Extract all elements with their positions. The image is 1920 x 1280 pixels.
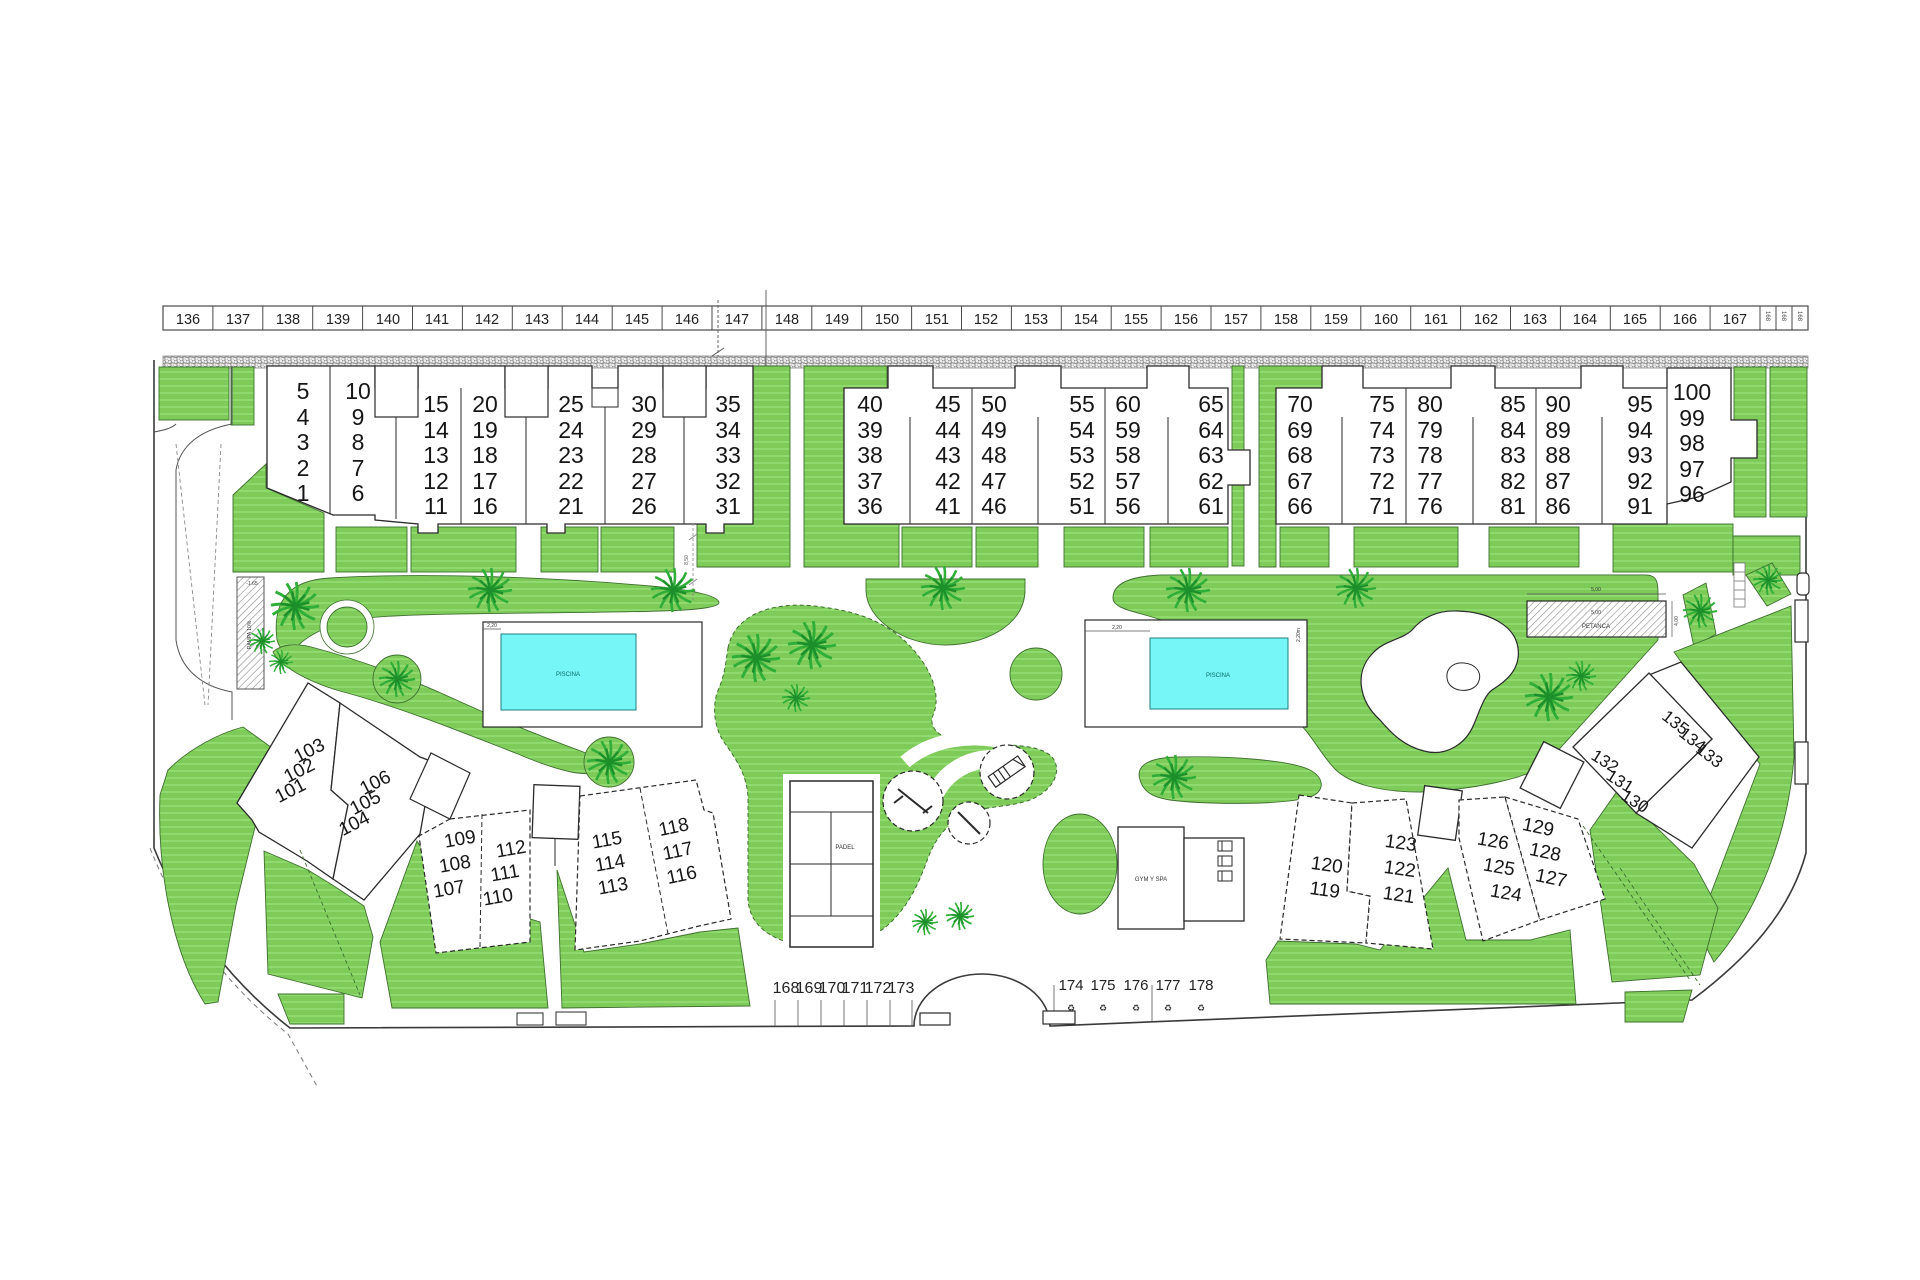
svg-text:158: 158: [1274, 312, 1298, 328]
svg-text:9: 9: [352, 404, 365, 430]
svg-text:61: 61: [1198, 493, 1224, 519]
svg-text:6: 6: [352, 480, 365, 506]
svg-text:28: 28: [631, 442, 657, 468]
svg-text:70: 70: [1287, 391, 1313, 417]
svg-text:139: 139: [326, 312, 350, 328]
svg-text:48: 48: [981, 442, 1007, 468]
svg-text:25: 25: [558, 391, 584, 417]
svg-text:93: 93: [1627, 442, 1653, 468]
svg-text:41: 41: [935, 493, 961, 519]
svg-text:♻: ♻: [1197, 1003, 1205, 1013]
svg-text:2,20m: 2,20m: [1296, 628, 1302, 642]
svg-text:46: 46: [981, 493, 1007, 519]
svg-text:44: 44: [935, 417, 961, 443]
svg-text:136: 136: [176, 312, 200, 328]
svg-text:4: 4: [297, 404, 310, 430]
svg-text:145: 145: [625, 312, 649, 328]
svg-text:175: 175: [1090, 977, 1115, 994]
svg-text:68: 68: [1287, 442, 1313, 468]
svg-text:160: 160: [1374, 312, 1398, 328]
svg-text:32: 32: [715, 468, 741, 494]
svg-text:86: 86: [1545, 493, 1571, 519]
svg-text:168: 168: [1780, 311, 1786, 322]
svg-text:71: 71: [1369, 493, 1395, 519]
svg-text:PETANCA: PETANCA: [1582, 624, 1610, 630]
svg-text:83: 83: [1500, 442, 1526, 468]
svg-text:122: 122: [1383, 857, 1417, 882]
svg-text:5,00: 5,00: [1591, 587, 1601, 593]
svg-text:58: 58: [1115, 442, 1141, 468]
svg-text:92: 92: [1627, 468, 1653, 494]
svg-text:30: 30: [631, 391, 657, 417]
svg-text:36: 36: [857, 493, 883, 519]
svg-text:157: 157: [1224, 312, 1248, 328]
svg-text:8: 8: [352, 429, 365, 455]
svg-text:79: 79: [1417, 417, 1443, 443]
svg-text:148: 148: [775, 312, 799, 328]
svg-text:39: 39: [857, 417, 883, 443]
svg-text:13: 13: [423, 442, 449, 468]
svg-text:64: 64: [1198, 417, 1224, 443]
svg-text:146: 146: [675, 312, 699, 328]
svg-text:62: 62: [1198, 468, 1224, 494]
svg-text:57: 57: [1115, 468, 1141, 494]
svg-text:11: 11: [424, 493, 448, 519]
svg-text:40: 40: [857, 391, 883, 417]
svg-text:37: 37: [857, 468, 883, 494]
svg-text:23: 23: [558, 442, 584, 468]
svg-text:♻: ♻: [1099, 1003, 1107, 1013]
svg-text:19: 19: [472, 417, 498, 443]
svg-text:12: 12: [423, 468, 449, 494]
svg-text:67: 67: [1287, 468, 1313, 494]
svg-text:85: 85: [1500, 391, 1526, 417]
svg-text:73: 73: [1369, 442, 1395, 468]
svg-text:150: 150: [875, 312, 899, 328]
svg-text:26: 26: [631, 493, 657, 519]
svg-text:8,50: 8,50: [684, 555, 690, 565]
svg-text:54: 54: [1069, 417, 1095, 443]
svg-text:96: 96: [1679, 481, 1705, 507]
svg-text:49: 49: [981, 417, 1007, 443]
svg-text:162: 162: [1474, 312, 1498, 328]
svg-text:75: 75: [1369, 391, 1395, 417]
svg-text:1: 1: [297, 480, 310, 506]
svg-text:94: 94: [1627, 417, 1653, 443]
svg-text:141: 141: [425, 312, 449, 328]
svg-text:168: 168: [1796, 311, 1802, 322]
svg-text:88: 88: [1545, 442, 1571, 468]
svg-text:5: 5: [297, 378, 310, 404]
svg-text:72: 72: [1369, 468, 1395, 494]
svg-text:33: 33: [715, 442, 741, 468]
svg-text:149: 149: [825, 312, 849, 328]
svg-text:5,00: 5,00: [1591, 610, 1601, 616]
svg-text:99: 99: [1679, 405, 1705, 431]
svg-text:120: 120: [1310, 853, 1344, 878]
svg-text:21: 21: [558, 493, 584, 519]
svg-text:178: 178: [1188, 977, 1213, 994]
svg-text:167: 167: [1723, 312, 1747, 328]
svg-text:53: 53: [1069, 442, 1095, 468]
svg-text:38: 38: [857, 442, 883, 468]
svg-text:PADEL: PADEL: [835, 845, 855, 851]
svg-text:174: 174: [1058, 977, 1083, 994]
svg-text:147: 147: [725, 312, 749, 328]
svg-text:24: 24: [558, 417, 584, 443]
svg-text:4,00: 4,00: [1674, 616, 1680, 626]
svg-text:51: 51: [1069, 493, 1095, 519]
svg-text:60: 60: [1115, 391, 1141, 417]
svg-text:82: 82: [1500, 468, 1526, 494]
svg-text:161: 161: [1424, 312, 1448, 328]
svg-text:90: 90: [1545, 391, 1571, 417]
svg-text:98: 98: [1679, 430, 1705, 456]
svg-text:16: 16: [472, 493, 498, 519]
svg-text:76: 76: [1417, 493, 1443, 519]
svg-text:121: 121: [1382, 883, 1416, 908]
svg-text:20: 20: [472, 391, 498, 417]
svg-text:142: 142: [475, 312, 499, 328]
svg-text:55: 55: [1069, 391, 1095, 417]
svg-text:29: 29: [631, 417, 657, 443]
svg-text:95: 95: [1627, 391, 1653, 417]
svg-text:65: 65: [1198, 391, 1224, 417]
svg-text:137: 137: [226, 312, 250, 328]
svg-text:173: 173: [888, 980, 915, 997]
svg-text:163: 163: [1523, 312, 1547, 328]
svg-text:10: 10: [345, 378, 371, 404]
svg-text:56: 56: [1115, 493, 1141, 519]
svg-text:♻: ♻: [1164, 1003, 1172, 1013]
svg-text:143: 143: [525, 312, 549, 328]
svg-text:159: 159: [1324, 312, 1348, 328]
svg-text:17: 17: [472, 468, 498, 494]
svg-text:77: 77: [1417, 468, 1443, 494]
svg-text:89: 89: [1545, 417, 1571, 443]
svg-text:PISCINA: PISCINA: [1206, 673, 1230, 679]
svg-text:♻: ♻: [1132, 1003, 1140, 1013]
svg-text:34: 34: [715, 417, 741, 443]
svg-text:164: 164: [1573, 312, 1597, 328]
svg-text:63: 63: [1198, 442, 1224, 468]
svg-text:14: 14: [423, 417, 449, 443]
svg-text:74: 74: [1369, 417, 1395, 443]
svg-text:47: 47: [981, 468, 1007, 494]
svg-text:66: 66: [1287, 493, 1313, 519]
svg-text:18: 18: [472, 442, 498, 468]
svg-text:144: 144: [575, 312, 599, 328]
svg-text:166: 166: [1673, 312, 1697, 328]
svg-text:151: 151: [925, 312, 949, 328]
svg-text:2,20: 2,20: [487, 623, 497, 629]
svg-text:177: 177: [1155, 977, 1180, 994]
svg-text:3: 3: [297, 429, 310, 455]
svg-text:69: 69: [1287, 417, 1313, 443]
svg-text:2: 2: [297, 455, 310, 481]
svg-text:15: 15: [423, 391, 449, 417]
svg-text:52: 52: [1069, 468, 1095, 494]
svg-text:154: 154: [1074, 312, 1098, 328]
svg-text:138: 138: [276, 312, 300, 328]
svg-text:156: 156: [1174, 312, 1198, 328]
svg-text:22: 22: [558, 468, 584, 494]
svg-text:119: 119: [1308, 878, 1341, 903]
svg-text:-1.65: -1.65: [246, 581, 258, 587]
svg-text:84: 84: [1500, 417, 1526, 443]
svg-text:176: 176: [1123, 977, 1148, 994]
svg-text:42: 42: [935, 468, 961, 494]
svg-text:78: 78: [1417, 442, 1443, 468]
svg-text:43: 43: [935, 442, 961, 468]
svg-text:45: 45: [935, 391, 961, 417]
svg-text:152: 152: [974, 312, 998, 328]
svg-text:155: 155: [1124, 312, 1148, 328]
svg-text:165: 165: [1623, 312, 1647, 328]
svg-text:91: 91: [1627, 493, 1653, 519]
svg-text:81: 81: [1500, 493, 1526, 519]
svg-text:27: 27: [631, 468, 657, 494]
svg-text:35: 35: [715, 391, 741, 417]
svg-text:59: 59: [1115, 417, 1141, 443]
svg-text:PISCINA: PISCINA: [556, 672, 580, 678]
svg-text:153: 153: [1024, 312, 1048, 328]
svg-text:7: 7: [352, 455, 365, 481]
svg-text:123: 123: [1384, 831, 1418, 856]
svg-text:97: 97: [1679, 456, 1705, 482]
svg-text:140: 140: [376, 312, 400, 328]
svg-text:31: 31: [715, 493, 741, 519]
svg-text:GYM Y SPA: GYM Y SPA: [1135, 877, 1167, 883]
svg-text:2,20: 2,20: [1112, 625, 1122, 631]
svg-text:80: 80: [1417, 391, 1443, 417]
svg-text:100: 100: [1673, 379, 1711, 405]
svg-text:87: 87: [1545, 468, 1571, 494]
svg-text:50: 50: [981, 391, 1007, 417]
svg-text:168: 168: [1764, 311, 1770, 322]
